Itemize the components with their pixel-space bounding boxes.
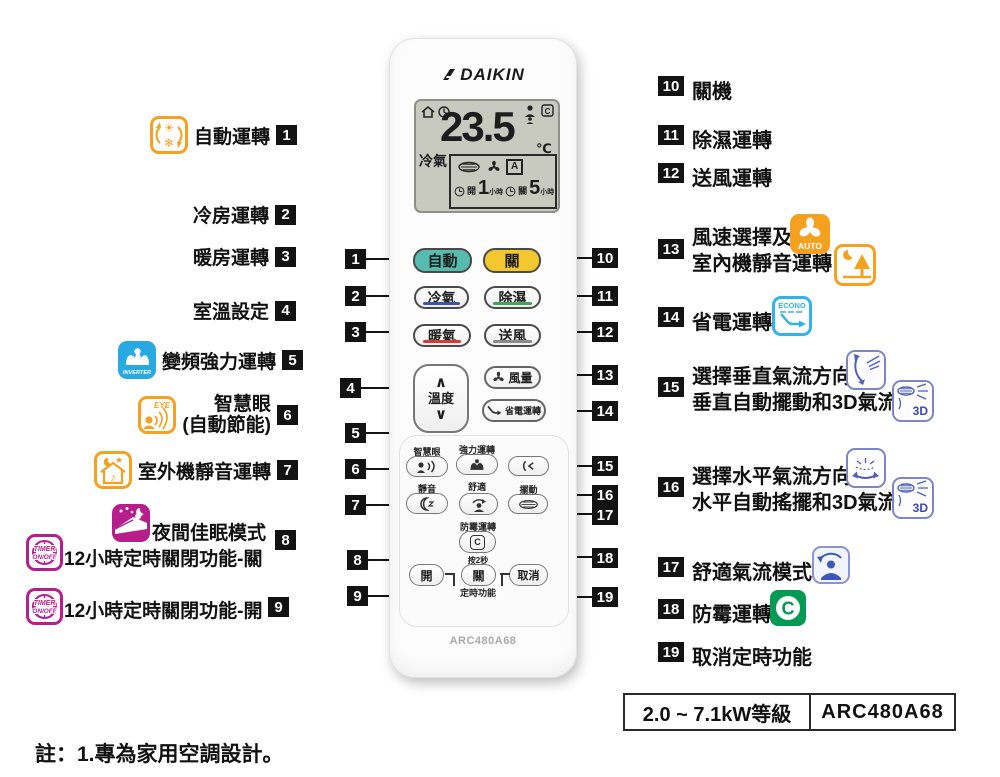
footnote: 註：1.專為家用空調設計。 xyxy=(35,738,284,768)
lcd-fan-auto-badge: A xyxy=(506,159,523,175)
rating-cell: 2.0 ~ 7.1kW等級 xyxy=(625,695,809,729)
smart-eye-icon: EYE xyxy=(138,396,176,434)
remote-model-text: ARC480A68 xyxy=(390,635,576,647)
comfort-button-icon xyxy=(471,497,487,512)
lcd-timer-on-clock-icon xyxy=(454,186,465,197)
daikin-logo: DAIKIN xyxy=(390,65,576,85)
night-mode-icon xyxy=(112,504,150,542)
timer-bracket xyxy=(500,573,510,575)
timer-onoff-icon: TIMER ON/OFF xyxy=(26,588,63,625)
timer-bracket xyxy=(445,573,455,575)
econo-arrow-icon xyxy=(487,405,502,416)
lcd-subpanel: A 開 1 小時 關 5 小時 xyxy=(449,154,557,209)
left-badge-4: 4 xyxy=(275,301,296,321)
left-label-6: EYE 智慧眼 (自動節能) 6 xyxy=(138,394,298,436)
manual-page: ☀ ❄ 自動運轉 1 冷房運轉 2 暖房運轉 3 室溫設定 4 INVERTER xyxy=(0,0,1000,777)
econo-icon: ECONO xyxy=(772,296,812,336)
comfort-button[interactable] xyxy=(459,493,498,515)
left-badge-6: 6 xyxy=(277,405,298,425)
right-badge-19: 19 xyxy=(658,642,684,662)
heat-button[interactable]: 暖氣 xyxy=(413,324,471,347)
econo-icon-text: ECONO xyxy=(778,301,806,310)
cool-underline xyxy=(423,302,460,305)
callout-11: 11 xyxy=(592,286,618,306)
temp-down-button[interactable]: ∨ xyxy=(435,407,447,423)
mold-proof-icon: C xyxy=(770,590,806,626)
left-label-8-line2: 12小時定時關閉功能-關 xyxy=(64,544,262,571)
inverter-icon: INVERTER xyxy=(118,341,156,379)
quiet-button-icon xyxy=(419,497,436,511)
lcd-timer-off-clock-icon xyxy=(505,186,516,197)
right-label-15-line1: 選擇垂直氣流方向 xyxy=(692,360,852,389)
auto-button[interactable]: 自動 xyxy=(413,248,472,273)
right-badge-10: 10 xyxy=(658,76,684,96)
fan-only-button[interactable]: 送風 xyxy=(484,324,541,347)
powerful-button[interactable] xyxy=(456,454,498,475)
vertical-swing-icon xyxy=(846,350,886,390)
cool-button[interactable]: 冷氣 xyxy=(414,286,469,309)
right-badge-15: 15 xyxy=(658,377,684,397)
off-button[interactable]: 關 xyxy=(483,248,541,273)
callout-2: 2 xyxy=(345,286,366,306)
smart-eye-icon-text: EYE xyxy=(154,401,171,410)
timer-off-button[interactable]: 關 xyxy=(461,564,496,586)
callout-16: 16 xyxy=(592,485,618,505)
smart-eye-button-icon xyxy=(416,460,438,474)
right-label-16-line2: 水平自動搖擺和3D氣流 xyxy=(692,486,898,515)
lcd-hour-unit: 小時 xyxy=(540,187,554,197)
lcd-temperature: 23.5 xyxy=(440,103,514,151)
right-badge-12: 12 xyxy=(658,163,684,183)
lcd-timer-on-hours: 1 xyxy=(478,179,487,197)
timer-on-button[interactable]: 開 xyxy=(409,564,444,586)
left-label-4: 室溫設定 4 xyxy=(193,297,296,324)
timer-icon-text1: TIMER xyxy=(34,600,56,607)
left-badge-8: 8 xyxy=(275,530,296,550)
remote-control: DAIKIN C 23.5 ℃ 冷氣 xyxy=(389,38,577,678)
left-badge-5: 5 xyxy=(282,350,303,370)
left-label-1: ☀ ❄ 自動運轉 1 xyxy=(150,116,297,154)
dry-underline xyxy=(493,302,531,305)
right-badge-14: 14 xyxy=(658,307,684,327)
3d-icon-text: 3D xyxy=(913,501,928,515)
right-label-17-text: 舒適氣流模式 xyxy=(692,556,812,585)
fan-speed-label: 風量 xyxy=(508,369,532,386)
callout-1: 1 xyxy=(345,249,366,269)
svg-text:☀: ☀ xyxy=(164,121,175,135)
mold-proof-button-icon: C xyxy=(470,535,485,550)
right-label-14-text: 省電運轉 xyxy=(692,306,772,335)
brand-name: DAIKIN xyxy=(460,65,525,85)
svg-text:C: C xyxy=(545,107,551,116)
left-label-7-text: 室外機靜音運轉 xyxy=(138,457,271,484)
horizontal-swing-button[interactable] xyxy=(508,494,548,514)
timer-icon-text1: TIMER xyxy=(34,546,56,553)
daikin-logo-mark xyxy=(441,67,457,83)
callout-6: 6 xyxy=(345,459,366,479)
people-sensor-icon: C xyxy=(522,104,554,124)
timer-onoff-icon: TIMER ON/OFF xyxy=(26,534,63,571)
left-label-3-text: 暖房運轉 xyxy=(193,243,269,270)
callout-8: 8 xyxy=(347,550,368,570)
heat-underline xyxy=(423,340,462,343)
right-badge-18: 18 xyxy=(658,599,684,619)
left-label-6-line1: 智慧眼 xyxy=(214,394,271,415)
callout-9: 9 xyxy=(347,586,368,606)
3d-airflow-icon: 3D xyxy=(892,477,934,519)
right-label-13-line1: 風速選擇及 xyxy=(692,221,792,250)
lcd-timer-off-hours: 5 xyxy=(529,179,538,197)
vertical-airflow-button-icon xyxy=(520,460,537,472)
right-label-11-text: 除濕運轉 xyxy=(692,124,772,153)
fan-underline xyxy=(493,340,531,343)
lcd-fan-icon xyxy=(487,160,501,174)
right-badge-16: 16 xyxy=(658,477,684,497)
temp-label: 溫度 xyxy=(428,391,454,407)
callout-14: 14 xyxy=(592,401,618,421)
3d-icon-text: 3D xyxy=(913,404,928,418)
right-badge-13: 13 xyxy=(658,239,684,259)
lcd-timer-on-label: 開 xyxy=(467,184,476,197)
mold-proof-button[interactable]: C xyxy=(459,531,496,553)
lcd-timer-off-label: 關 xyxy=(518,184,527,197)
dry-button[interactable]: 除濕 xyxy=(484,286,541,309)
right-label-19-text: 取消定時功能 xyxy=(692,641,812,670)
right-label-10-text: 關機 xyxy=(692,75,732,104)
svg-text:❄: ❄ xyxy=(164,136,174,150)
left-label-7: ♪ 室外機靜音運轉 7 xyxy=(94,451,298,489)
timer-on-button-label: 開 xyxy=(420,567,432,584)
econo-button[interactable]: 省電運轉 xyxy=(482,399,546,422)
vertical-airflow-button[interactable] xyxy=(508,456,549,476)
comfort-airflow-icon xyxy=(812,546,850,584)
off-button-label: 關 xyxy=(504,250,519,271)
callout-19: 19 xyxy=(592,587,618,607)
left-label-4-text: 室溫設定 xyxy=(193,297,269,324)
model-cell: ARC480A68 xyxy=(811,695,954,729)
left-badge-2: 2 xyxy=(275,205,296,225)
lcd-mode: 冷氣 xyxy=(419,151,447,171)
timer-cancel-button[interactable]: 取消 xyxy=(509,564,548,586)
auto-mode-icon: ☀ ❄ xyxy=(150,116,188,154)
lcd-display: C 23.5 ℃ 冷氣 A xyxy=(414,99,560,213)
right-badge-17: 17 xyxy=(658,557,684,577)
right-label-18-text: 防霉運轉 xyxy=(692,598,772,627)
right-badge-11: 11 xyxy=(658,125,684,145)
temp-up-button[interactable]: ∧ xyxy=(435,375,447,391)
left-label-5: INVERTER 變頻強力運轉 5 xyxy=(118,341,303,379)
left-label-9-text: 12小時定時關閉功能-開 xyxy=(64,596,262,623)
mold-proof-icon-text: C xyxy=(782,599,795,619)
callout-18: 18 xyxy=(592,548,618,568)
outdoor-quiet-icon: ♪ xyxy=(94,451,132,489)
auto-button-label: 自動 xyxy=(427,250,457,271)
fan-icon xyxy=(492,371,505,384)
smart-eye-button[interactable] xyxy=(406,456,448,477)
comfort-label: 舒適 xyxy=(456,480,498,493)
powerful-button-icon xyxy=(468,458,486,471)
timer-icon-text2: ON/OFF xyxy=(32,608,57,615)
left-label-6-line2: (自動節能) xyxy=(182,415,271,436)
callout-12: 12 xyxy=(592,322,618,342)
timer-off-button-label: 關 xyxy=(472,567,484,584)
svg-text:♪: ♪ xyxy=(110,472,116,484)
fan-speed-button[interactable]: 風量 xyxy=(484,366,541,389)
left-label-1-text: 自動運轉 xyxy=(194,122,270,149)
lcd-hour-unit: 小時 xyxy=(489,187,503,197)
econo-button-label: 省電運轉 xyxy=(505,404,541,417)
callout-7: 7 xyxy=(345,495,366,515)
left-badge-1: 1 xyxy=(276,125,297,145)
left-label-2: 冷房運轉 2 xyxy=(193,201,296,228)
left-badge-3: 3 xyxy=(275,247,296,267)
callout-5: 5 xyxy=(345,423,366,443)
callout-13: 13 xyxy=(592,365,618,385)
callout-15: 15 xyxy=(592,456,618,476)
auto-fan-icon: AUTO xyxy=(790,214,830,254)
timer-cancel-button-label: 取消 xyxy=(518,567,540,583)
left-label-2-text: 冷房運轉 xyxy=(193,201,269,228)
temperature-rocker[interactable]: ∧ 溫度 ∨ xyxy=(413,364,469,433)
left-label-5-text: 變頻強力運轉 xyxy=(162,347,276,374)
timer-icon-text2: ON/OFF xyxy=(32,554,57,561)
callout-17: 17 xyxy=(592,505,618,525)
right-label-12-text: 送風運轉 xyxy=(692,162,772,191)
horizontal-swing-icon xyxy=(846,448,886,488)
left-badge-9: 9 xyxy=(268,597,289,617)
auto-fan-icon-text: AUTO xyxy=(798,241,822,251)
model-rating-box: 2.0 ~ 7.1kW等級 ARC480A68 xyxy=(623,693,956,731)
left-badge-7: 7 xyxy=(277,460,298,480)
horizontal-swing-button-icon xyxy=(518,499,539,510)
timer-group-label: 定時功能 xyxy=(451,586,505,599)
quiet-button[interactable] xyxy=(406,493,448,514)
left-label-8-line1: 夜間佳眠模式 xyxy=(152,518,266,545)
callout-4: 4 xyxy=(340,378,361,398)
inverter-icon-text: INVERTER xyxy=(123,370,151,376)
callout-10: 10 xyxy=(592,248,618,268)
callout-3: 3 xyxy=(345,322,366,342)
left-label-3: 暖房運轉 3 xyxy=(193,243,296,270)
3d-airflow-icon: 3D xyxy=(892,380,934,422)
quiet-tree-icon xyxy=(834,244,876,286)
right-label-16-line1: 選擇水平氣流方向 xyxy=(692,460,852,489)
lcd-louvre-icon xyxy=(456,161,482,173)
